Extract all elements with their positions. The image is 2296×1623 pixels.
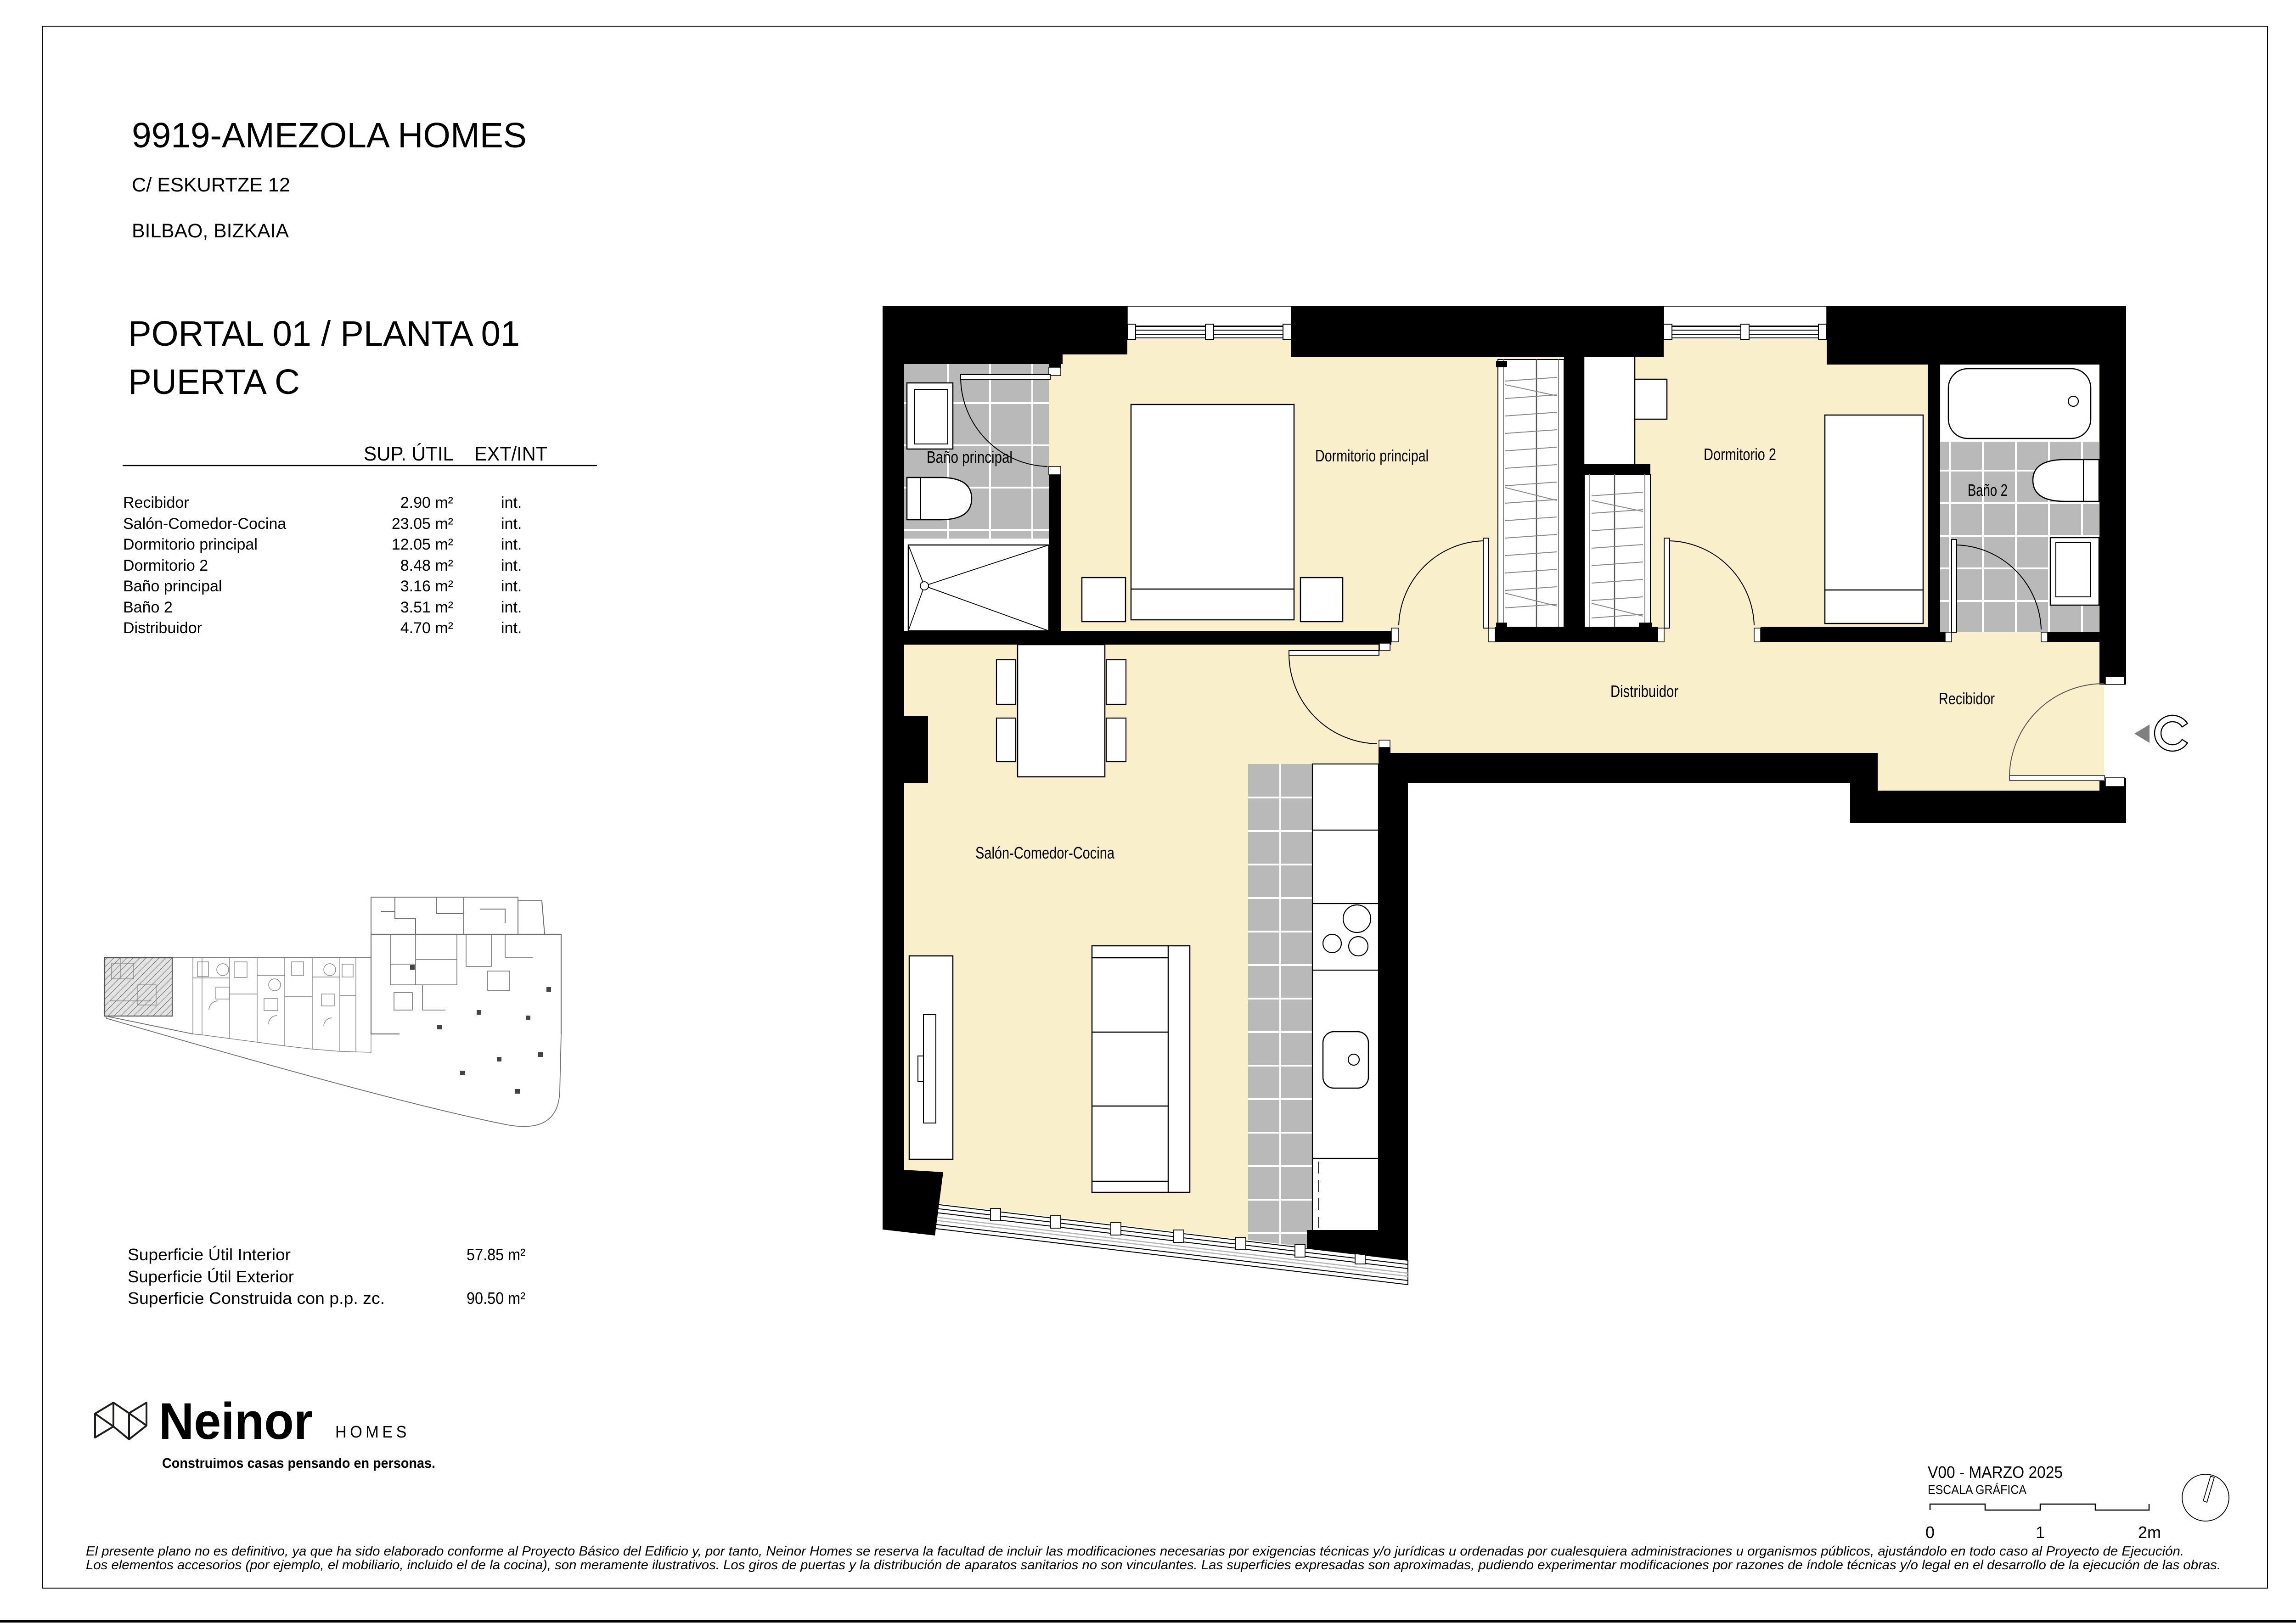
svg-text:int.: int. [501, 599, 522, 616]
svg-text:PUERTA C: PUERTA C [128, 362, 300, 402]
svg-text:Superficie Útil Interior: Superficie Útil Interior [128, 1245, 291, 1264]
svg-text:Baño principal: Baño principal [927, 448, 1013, 466]
svg-text:V00 - MARZO 2025: V00 - MARZO 2025 [1928, 1463, 2063, 1482]
svg-text:Baño principal: Baño principal [123, 578, 222, 595]
svg-text:El presente plano no es defini: El presente plano no es definitivo, ya q… [86, 1544, 2184, 1559]
svg-text:C/ ESKURTZE 12: C/ ESKURTZE 12 [132, 174, 290, 196]
svg-text:Recibidor: Recibidor [123, 494, 189, 511]
svg-text:int.: int. [501, 515, 522, 533]
svg-text:BILBAO, BIZKAIA: BILBAO, BIZKAIA [132, 220, 289, 242]
svg-text:Dormitorio principal: Dormitorio principal [1315, 446, 1429, 465]
svg-text:90.50 m²: 90.50 m² [467, 1289, 525, 1308]
svg-text:Recibidor: Recibidor [1939, 689, 1995, 708]
svg-text:int.: int. [501, 536, 522, 553]
svg-text:Dormitorio principal: Dormitorio principal [123, 536, 258, 553]
svg-text:HOMES: HOMES [335, 1422, 410, 1441]
svg-text:Baño 2: Baño 2 [1968, 481, 2008, 500]
svg-text:Superficie Construida con p.p.: Superficie Construida con p.p. zc. [128, 1289, 385, 1308]
svg-text:Dormitorio 2: Dormitorio 2 [123, 557, 208, 574]
svg-text:2m: 2m [2138, 1523, 2161, 1542]
svg-text:Baño 2: Baño 2 [123, 599, 173, 616]
svg-text:2.90 m²: 2.90 m² [400, 494, 453, 511]
svg-text:12.05 m²: 12.05 m² [392, 536, 453, 553]
svg-text:3.51 m²: 3.51 m² [400, 599, 453, 616]
svg-text:0: 0 [1925, 1523, 1935, 1542]
svg-text:23.05 m²: 23.05 m² [392, 515, 453, 533]
svg-text:Superficie Útil Exterior: Superficie Útil Exterior [128, 1267, 294, 1286]
svg-text:int.: int. [501, 619, 522, 637]
svg-text:int.: int. [501, 494, 522, 511]
svg-text:Neinor: Neinor [159, 1393, 313, 1450]
svg-text:SUP. ÚTIL: SUP. ÚTIL [364, 443, 454, 465]
svg-text:Los elementos accesorios (por: Los elementos accesorios (por ejemplo, e… [86, 1558, 2221, 1572]
svg-text:57.85 m²: 57.85 m² [467, 1245, 525, 1264]
svg-text:ESCALA GRÁFICA: ESCALA GRÁFICA [1928, 1483, 2026, 1497]
svg-text:Distribuidor: Distribuidor [1610, 682, 1678, 701]
svg-text:int.: int. [501, 578, 522, 595]
svg-text:PORTAL 01 / PLANTA 01: PORTAL 01 / PLANTA 01 [128, 314, 520, 354]
svg-text:3.16 m²: 3.16 m² [400, 578, 453, 595]
svg-text:9919-AMEZOLA HOMES: 9919-AMEZOLA HOMES [132, 116, 527, 155]
svg-text:4.70 m²: 4.70 m² [400, 619, 453, 637]
svg-text:EXT/INT: EXT/INT [474, 443, 547, 465]
svg-text:1: 1 [2036, 1523, 2045, 1542]
svg-text:int.: int. [501, 557, 522, 574]
svg-text:Dormitorio 2: Dormitorio 2 [1704, 445, 1776, 464]
svg-text:8.48 m²: 8.48 m² [400, 557, 453, 574]
svg-text:Distribuidor: Distribuidor [123, 619, 202, 637]
svg-text:Salón-Comedor-Cocina: Salón-Comedor-Cocina [123, 515, 286, 533]
svg-text:Construimos casas pensando en: Construimos casas pensando en personas. [162, 1455, 435, 1471]
svg-text:Salón-Comedor-Cocina: Salón-Comedor-Cocina [975, 843, 1115, 862]
